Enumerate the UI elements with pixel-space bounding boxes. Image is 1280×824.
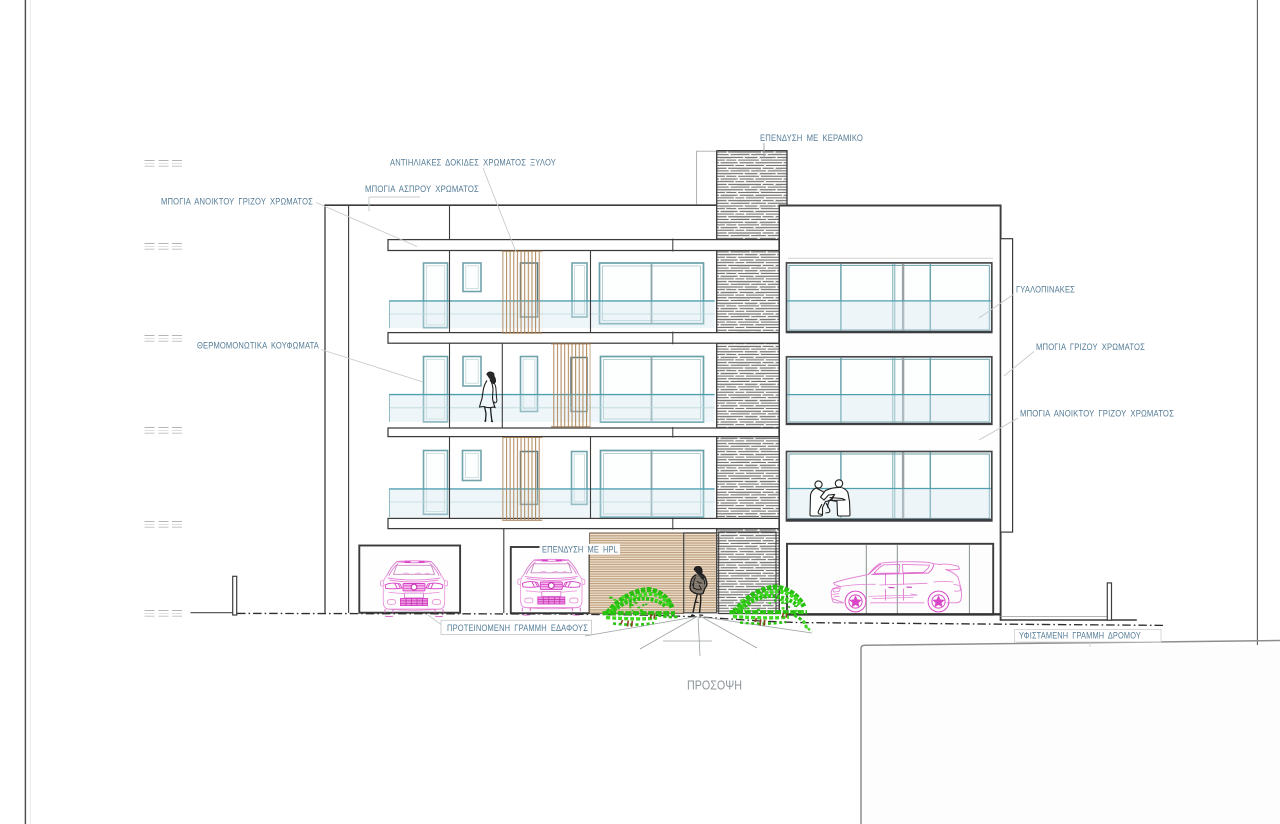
svg-text:ΠΡΟΣΟΨΗ: ΠΡΟΣΟΨΗ [687,678,742,693]
svg-text:ΥΦΙΣΤΑΜΕΝΗ ΓΡΑΜΜΗ ΔΡΟΜΟΥ: ΥΦΙΣΤΑΜΕΝΗ ΓΡΑΜΜΗ ΔΡΟΜΟΥ [1019,630,1141,640]
svg-text:ΠΡΟΤΕΙΝΟΜΕΝΗ ΓΡΑΜΜΗ ΕΔΑΦΟΥΣ: ΠΡΟΤΕΙΝΟΜΕΝΗ ΓΡΑΜΜΗ ΕΔΑΦΟΥΣ [447,623,588,633]
svg-text:ΜΠΟΓΙΑ ΑΣΠΡΟΥ ΧΡΩΜΑΤΟΣ: ΜΠΟΓΙΑ ΑΣΠΡΟΥ ΧΡΩΜΑΤΟΣ [365,184,479,194]
svg-text:ΕΠΕΝΔΥΣΗ ΜΕ HPL: ΕΠΕΝΔΥΣΗ ΜΕ HPL [542,545,618,555]
svg-text:ΜΠΟΓΙΑ ΑΝΟΙΚΤΟΥ ΓΡΙΖΟΥ ΧΡΩΜΑΤΟ: ΜΠΟΓΙΑ ΑΝΟΙΚΤΟΥ ΓΡΙΖΟΥ ΧΡΩΜΑΤΟΣ [161,197,313,207]
svg-text:ΑΝΤΙΗΛΙΑΚΕΣ ΔΟΚΙΔΕΣ ΧΡΩΜΑΤΟΣ Ξ: ΑΝΤΙΗΛΙΑΚΕΣ ΔΟΚΙΔΕΣ ΧΡΩΜΑΤΟΣ ΞΥΛΟΥ [390,158,556,168]
svg-text:ΓΥΑΛΟΠΙΝΑΚΕΣ: ΓΥΑΛΟΠΙΝΑΚΕΣ [1016,285,1075,295]
svg-text:ΜΠΟΓΙΑ ΑΝΟΙΚΤΟΥ ΓΡΙΖΟΥ ΧΡΩΜΑΤΟ: ΜΠΟΓΙΑ ΑΝΟΙΚΤΟΥ ΓΡΙΖΟΥ ΧΡΩΜΑΤΟΣ [1020,409,1174,419]
svg-text:ΜΠΟΓΙΑ ΓΡΙΖΟΥ ΧΡΩΜΑΤΟΣ: ΜΠΟΓΙΑ ΓΡΙΖΟΥ ΧΡΩΜΑΤΟΣ [1036,342,1145,352]
svg-text:ΕΠΕΝΔΥΣΗ ΜΕ ΚΕΡΑΜΙΚΟ: ΕΠΕΝΔΥΣΗ ΜΕ ΚΕΡΑΜΙΚΟ [760,133,863,143]
svg-text:ΘΕΡΜΟΜΟΝΩΤΙΚΑ ΚΟΥΦΩΜΑΤΑ: ΘΕΡΜΟΜΟΝΩΤΙΚΑ ΚΟΥΦΩΜΑΤΑ [197,341,320,351]
